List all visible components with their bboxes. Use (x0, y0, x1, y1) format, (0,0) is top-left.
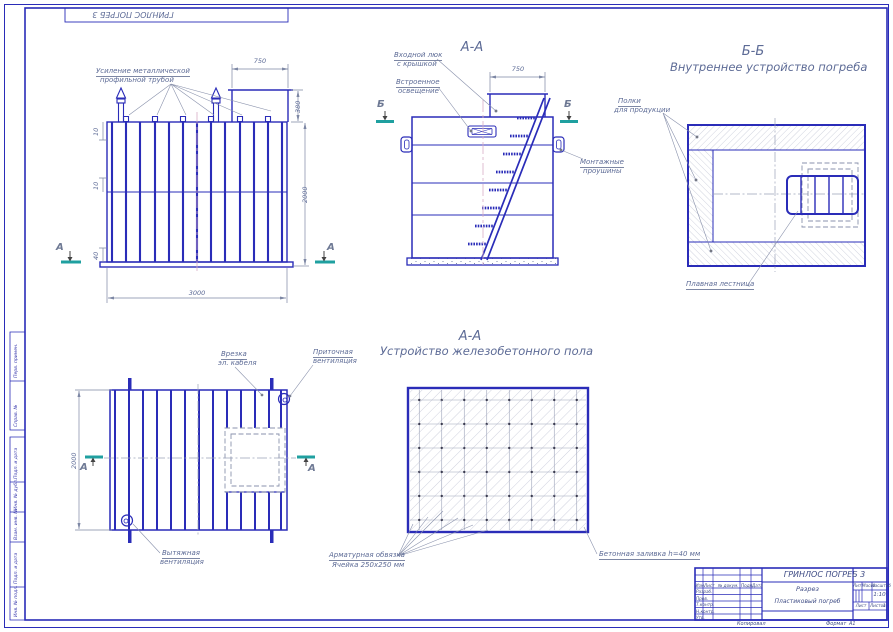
titleblock-scale-value: 1:10 (872, 593, 887, 599)
bb-view-subtitle: Внутреннее устройство погреба (670, 60, 865, 74)
aa-dim-750: 750 (503, 65, 533, 73)
edge-label-inv-dubl: Инв. № дубл. (14, 479, 19, 510)
titleblock-sheet-label: Лист (853, 604, 869, 608)
plan-pipe-stubs (128, 378, 274, 543)
front-dim-3000: 3000 (182, 289, 212, 297)
titleblock-row-utv: Утв. (696, 616, 705, 620)
plan-dim-2000: 2000 (70, 452, 78, 469)
titleblock-doc-type: Разрез (763, 586, 852, 593)
edge-label-perv-primen: Перв. примен. (14, 344, 19, 379)
floor-rebar-label-line1: Арматурная обвязка (329, 551, 405, 561)
aa-section-marker-b-right: Б (564, 99, 572, 112)
plan-hatch-dashed (225, 428, 285, 492)
front-dim-10b: 10 (92, 182, 100, 190)
front-reinforcement-leaders (129, 84, 271, 115)
front-dim-750: 750 (245, 57, 275, 65)
bb-view-title: Б-Б (733, 44, 773, 60)
front-dim-40: 40 (92, 252, 100, 260)
aa-light-label-line2: освещение (398, 87, 439, 96)
bb-shelves-label-line2: для продукции (614, 106, 670, 115)
front-dim-380: 380 (294, 101, 302, 113)
plan-vent-circles (122, 394, 290, 527)
stamp-flipped-title: ГРИНЛОС ПОГРЕБ 3 (68, 10, 198, 19)
front-dim-2000: 2000 (301, 186, 309, 203)
aa-view-title: А-А (452, 40, 492, 56)
front-section-marker-a-left: А (56, 242, 64, 255)
titleblock-header-masshtab: Масштаб (871, 584, 887, 588)
aa-lugs-label-line2: проушины (583, 167, 622, 176)
titleblock-row-prov: Пров. (696, 597, 708, 601)
aa-dimensions (490, 72, 545, 92)
titleblock-header-lit: Лит. (853, 584, 862, 588)
floor-concrete-label: Бетонная заливка h=40 мм (599, 550, 700, 560)
titleblock-doc-subtitle: Пластиковый погреб (763, 599, 852, 605)
drawing-linework (0, 0, 893, 632)
bb-ladder-plan (787, 176, 858, 214)
edge-label-vzam-inv: Взам. инв. № (14, 509, 19, 540)
plan-leaders (133, 365, 313, 553)
titleblock-row-tkontr: Т.контр. (696, 603, 714, 607)
drawing-sheet: Перв. примен. Справ. № Подп. и дата Инв.… (0, 0, 893, 632)
edge-label-podp-data-2: Подп. и дата (14, 553, 19, 584)
titleblock-header-data: Дата (752, 584, 763, 588)
aa-section-marker-b-left: Б (377, 99, 385, 112)
titleblock-header-list: Лист (704, 584, 715, 588)
bb-hatch-projection (802, 163, 858, 227)
aa-ladder-rails (481, 98, 550, 260)
titleblock-format-value: А1 (849, 622, 856, 627)
floor-view-subtitle: Устройство железобетонного пола (380, 344, 565, 358)
titleblock-row-razrab: Разраб. (696, 590, 712, 594)
titleblock-doc-name: ГРИНЛОС ПОГРЕБ 3 (762, 571, 887, 579)
plan-section-marker-a-right: А (308, 463, 316, 476)
front-reinforcement-label-line2: профильной трубой (100, 76, 174, 85)
bb-ladder-label: Плавная лестница (686, 280, 754, 290)
titleblock-header-ndoc: № докум. (718, 584, 739, 588)
edge-label-sprav: Справ. № (14, 405, 19, 427)
aa-hatch-label-line2: с крышкой (397, 60, 437, 69)
plan-supply-vent-label-line2: вентиляция (313, 357, 357, 366)
floor-view (398, 388, 597, 556)
bb-view (688, 125, 865, 266)
plan-section-marker-a-left: А (80, 462, 88, 475)
edge-label-inv-podl: Инв. № подл. (14, 585, 19, 617)
edge-label-podp-data-1: Подп. и дата (14, 448, 19, 479)
titleblock-copied-label: Копировал (737, 622, 766, 627)
floor-view-title: А-А (450, 329, 490, 345)
aa-view (401, 94, 564, 265)
plan-exhaust-vent-label-line2: вентиляция (160, 558, 204, 567)
front-section-marker-a-right: А (327, 242, 335, 255)
titleblock-row-nkontr: Н.контр. (696, 610, 715, 614)
titleblock-format-label: Формат (826, 622, 846, 627)
plan-view (110, 378, 290, 543)
plan-cable-label-line2: эл. кабеля (218, 359, 257, 368)
front-dim-10a: 10 (92, 128, 100, 136)
titleblock-sheets-value: 1 (883, 604, 886, 608)
floor-rebar-label-line2: Ячейка 250х250 мм (332, 561, 404, 570)
